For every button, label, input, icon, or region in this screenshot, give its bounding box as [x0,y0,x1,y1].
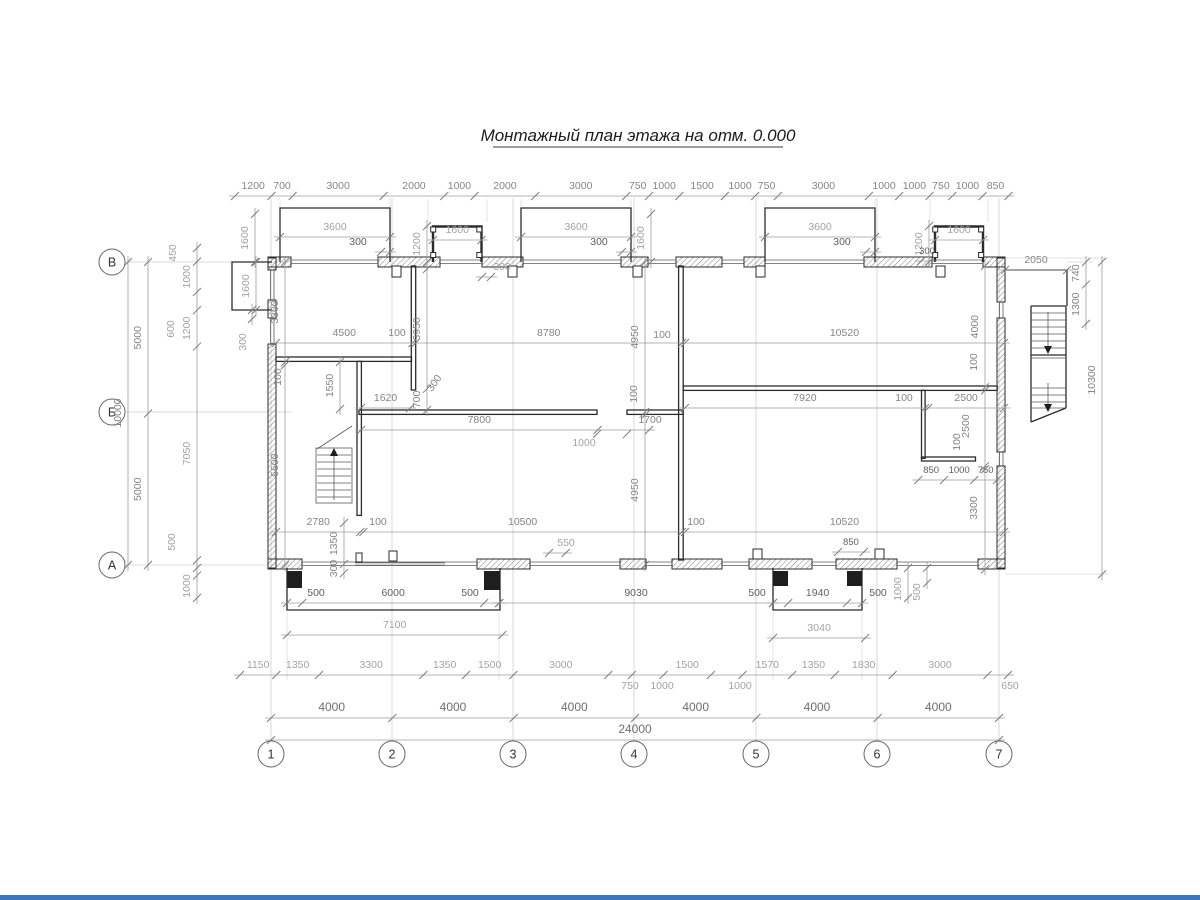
dim-label: 1000 [448,180,472,192]
dim-label: 5000 [132,477,144,501]
dim-label: 100 [968,353,980,371]
wall-pier [997,318,1005,452]
dim-label: 2500 [954,392,978,404]
dim-label: 6000 [381,587,405,599]
wall-pier [477,559,530,569]
dim-label: 450 [167,244,179,262]
corner-marker [933,227,938,232]
dim-label: 1000 [650,680,674,692]
dim-label: 850 [843,537,859,548]
column-tab [753,549,762,559]
dim-label: 1940 [806,587,830,599]
dim-label: 850 [987,180,1005,192]
dim-label: 1620 [374,392,398,404]
dim-label: 1600 [635,226,647,250]
dim-label: 7050 [181,442,193,466]
corner-marker [979,227,984,232]
dim-label: 500 [461,587,479,599]
dim-label: 8780 [537,327,561,339]
dim-label: 100 [369,516,387,528]
dim-label: В [108,256,116,270]
dim-label: 4000 [804,700,831,714]
dim-label: 6 [874,748,881,762]
dim-label: 1200 [411,232,423,256]
dim-label: 4500 [333,327,357,339]
dim-label: 1000 [572,437,596,449]
dim-label: 1700 [638,414,662,426]
dim-label: 550 [557,537,575,549]
column-marker [389,551,397,561]
dim-label: 1350 [328,532,340,556]
dim-label: 3600 [808,221,832,233]
dim-label: 1000 [181,574,193,598]
wall-pier [997,466,1005,568]
drawing-title: Монтажный план этажа на отм. 0.000 [481,126,796,145]
dim-label: 5 [753,748,760,762]
wall-pier [864,257,932,267]
dim-label: 3000 [549,659,573,671]
dim-label: 750 [629,180,647,192]
porch-post [847,571,862,586]
dim-label: 4950 [629,325,641,349]
column-tab [756,266,765,277]
dim-label: 3300 [359,659,383,671]
dim-label: 7 [996,748,1003,762]
porch-post [484,571,500,590]
dim-label: 1000 [903,180,927,192]
dim-label: 100 [628,385,640,403]
dim-label: 4950 [629,478,641,502]
dim-label: 1550 [324,374,336,398]
dim-label: 3600 [564,221,588,233]
dim-label: 300 [349,236,367,248]
wall-pier [268,258,276,270]
dim-label: 700 [273,180,291,192]
dim-label: 10520 [830,327,859,339]
dim-label: 4000 [561,700,588,714]
dim-label: 3300 [269,300,281,324]
dim-label: 500 [869,587,887,599]
column-marker [356,553,362,562]
dim-label: 24000 [618,722,652,736]
dim-label: 3000 [569,180,593,192]
wall-pier [749,559,812,569]
dim-label: 1600 [446,224,470,236]
dim-label: 1350 [286,659,310,671]
dim-label: 750 [758,180,776,192]
dim-label: 500 [748,587,766,599]
dim-label: 300 [237,333,249,351]
dim-label: 7800 [468,414,492,426]
dim-label: 10520 [830,516,859,528]
dim-label: 1000 [181,265,193,289]
dim-label: 5000 [132,326,144,350]
dim-label: 100 [687,516,705,528]
corner-marker [979,253,984,258]
column-tab [633,266,642,277]
dim-label: 300 [919,246,935,257]
dim-label: 500 [166,533,178,551]
dim-label: 850 [923,465,939,476]
dim-label: 300 [590,236,608,248]
dim-label: 300 [328,560,340,578]
column-tab [936,266,945,277]
dim-label: 1000 [728,180,752,192]
dim-label: 740 [1070,264,1082,282]
dim-label: 1150 [247,659,270,671]
column-tab [392,266,401,277]
dim-label: 1300 [1070,292,1082,316]
dim-label: 3300 [968,496,980,520]
dim-label: 750 [978,465,994,476]
dim-label: 1500 [478,659,502,671]
dim-label: 3 [510,748,517,762]
corner-marker [431,227,436,232]
dim-label: 2050 [1024,254,1048,266]
dim-label: 6600 [269,453,281,477]
dim-label: 100 [388,327,406,339]
dim-label: 100 [653,329,671,341]
dim-label: 1500 [690,180,714,192]
dim-label: 3950 [411,317,423,341]
wall-pier [836,559,897,569]
dim-label: 10500 [508,516,537,528]
dim-label: 9030 [624,587,648,599]
window-bottom-edge [0,895,1200,900]
dim-label: 500 [307,587,325,599]
porch-post [287,571,302,588]
dim-label: 3600 [323,221,347,233]
dim-label: 100 [895,392,913,404]
dim-label: 2 [389,748,396,762]
dim-label: 2780 [306,516,330,528]
dim-label: 650 [1001,680,1019,692]
dim-label: 4000 [969,315,981,339]
dim-label: 3000 [326,180,350,192]
dim-label: 1600 [947,224,971,236]
dim-label: 4000 [682,700,709,714]
dim-label: 1570 [756,659,780,671]
dim-label: 100 [951,433,963,451]
dim-label: 1000 [872,180,896,192]
dim-label: 4000 [440,700,467,714]
dim-label: 1000 [728,680,752,692]
dim-label: 500 [911,583,923,601]
porch-post [773,571,788,586]
dim-label: 7920 [793,392,817,404]
dim-label: 1 [268,748,275,762]
dim-label: 3000 [928,659,952,671]
dim-label: 4000 [925,700,952,714]
dim-label: 1350 [802,659,826,671]
column-tab [875,549,884,559]
dim-label: 100 [272,368,284,386]
dim-label: 1500 [676,659,700,671]
dim-label: 3040 [807,622,831,634]
dim-label: 300 [493,261,511,273]
dim-label: 1000 [956,180,980,192]
dim-label: 4 [631,748,638,762]
corner-marker [477,227,482,232]
dim-label: 1350 [433,659,457,671]
dim-label: 4000 [318,700,345,714]
dim-label: 7100 [383,619,407,631]
dim-label: 10000 [112,398,124,427]
corner-marker [431,253,436,258]
dim-label: 1000 [652,180,676,192]
dim-label: 1000 [892,577,904,601]
dim-label: 1000 [949,465,970,476]
dim-label: А [108,559,117,573]
dim-label: 1830 [852,659,876,671]
dim-label: 300 [833,236,851,248]
dim-label: 1200 [242,180,266,192]
wall-pier [997,258,1005,302]
dim-label: 1600 [240,274,252,298]
dim-label: 10300 [1086,365,1098,394]
dim-label: 1200 [181,317,193,341]
floor-plan: Монтажный план этажа на отм. 0.000 12345… [0,0,1200,900]
dim-label: 2000 [402,180,426,192]
dim-label: 750 [621,680,639,692]
corner-marker [477,253,482,258]
dim-label: 1600 [239,226,251,250]
dim-label: 750 [932,180,950,192]
dim-label: 2000 [493,180,517,192]
dim-label: 3000 [812,180,836,192]
dim-label: 600 [165,320,177,338]
